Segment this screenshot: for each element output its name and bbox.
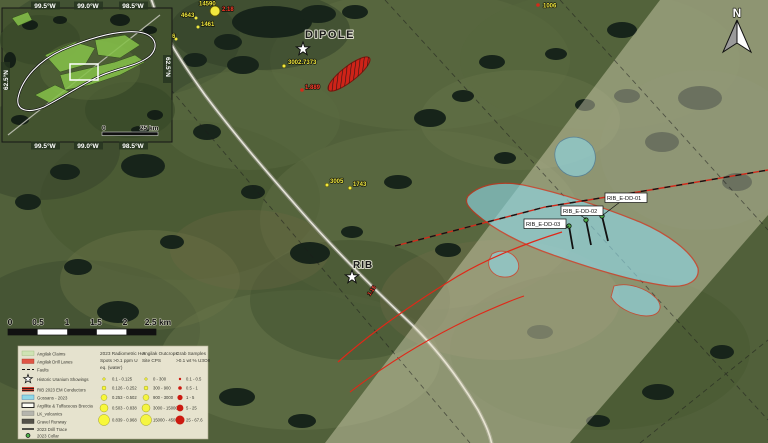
- drill-hole-label: RIB_E-DD-01: [607, 196, 641, 202]
- inset-lon-label: 98.5°W: [122, 2, 144, 10]
- legend-hotspots-row: 0.1 - 0.125: [112, 377, 133, 382]
- legend-grab-row: 0.1 - 0.5: [186, 377, 202, 382]
- legend-item-label: Gossans - 2023: [37, 395, 68, 400]
- legend-item-label: 2023 Drill Trace: [37, 427, 68, 432]
- legend-hotspots-title: 2023 Radiometric Hot: [100, 351, 146, 356]
- inset-scale-zero: 0: [102, 125, 106, 132]
- sample-value: 1743: [353, 182, 367, 188]
- inset-scale-max: 25 km: [140, 125, 159, 132]
- legend-hotspots-row: 0.253 - 0.502: [112, 395, 137, 400]
- legend: Angilak Claims Angilak Drill Lanes Fault…: [18, 346, 211, 439]
- scale-tick: 1.5: [90, 317, 102, 327]
- inset-lon-label: 98.5°W: [122, 142, 144, 150]
- inset-lon-label: 99.0°W: [77, 2, 99, 10]
- scale-bar: 0 0.5 1 1.5 2 2.5 km: [8, 317, 172, 335]
- scale-tick: 0: [8, 317, 13, 327]
- legend-item-label: Angilak Claims: [37, 351, 65, 356]
- legend-item-label: Argillite & Tuffaceous Breccia: [37, 403, 93, 408]
- scale-tick: 1: [65, 317, 70, 327]
- drill-hole-label: RIB_E-DD-02: [563, 209, 597, 215]
- rib-label: RIB: [353, 260, 373, 271]
- sample-value: 14590: [199, 2, 216, 8]
- legend-grab-row: 25 - 67.6: [186, 418, 203, 423]
- scale-tick: 2.5 km: [145, 317, 172, 327]
- inset-lon-label: 99.5°W: [34, 142, 56, 150]
- legend-item-label: Angilak Drill Lanes: [37, 359, 73, 364]
- sample-value: 1006: [543, 4, 557, 10]
- legend-hotspots-title: eq. (water): [100, 365, 123, 370]
- drill-hole-label: RIB_E-DD-03: [526, 222, 560, 228]
- legend-cps-title: Angilak Outcrops: [142, 351, 178, 356]
- north-label: N: [733, 6, 742, 20]
- legend-grab-row: 1 - 5: [186, 395, 195, 400]
- legend-item-label: LK_volcanics: [37, 411, 62, 416]
- sample-value: 1.889: [305, 85, 321, 91]
- sample-value: 3002.7373: [288, 60, 317, 66]
- legend-hotspots-row: 0.503 - 0.838: [112, 406, 137, 411]
- legend-grab-row: 0.5 - 1: [186, 386, 199, 391]
- inset-lon-label: 99.0°W: [77, 142, 99, 150]
- inset-lat-label: 62.5°N: [2, 70, 10, 90]
- legend-cps-title: Site CPS: [142, 358, 161, 363]
- legend-item-label: RIB 2023 EM Conductors: [37, 387, 86, 392]
- exploration-map-figure: RIB_E-DD-01 RIB_E-DD-02 RIB_E-DD-03 DIPO…: [0, 0, 768, 443]
- legend-grab-title: Grab Samples: [176, 351, 207, 356]
- legend-grab-row: 5 - 25: [186, 406, 197, 411]
- scale-tick: 0.5: [32, 317, 44, 327]
- sample-value: 4643: [181, 13, 195, 19]
- scale-tick: 2: [123, 317, 128, 327]
- legend-item-label: Faults: [37, 367, 49, 372]
- dipole-label: DIPOLE: [305, 29, 355, 41]
- legend-grab-title: >0.1 wt % U3O8: [176, 358, 211, 363]
- legend-item-label: Gravel Runway: [37, 419, 67, 424]
- legend-hotspots-row: 0.839 - 0.968: [112, 418, 137, 423]
- legend-hotspots-title: Spots >0.1 ppm U: [100, 358, 138, 363]
- sample-value: 2.18: [222, 7, 234, 13]
- legend-cps-row: 900 - 3000: [153, 395, 174, 400]
- inset-map: 99.5°W 99.0°W 98.5°W 99.5°W 99.0°W 98.5°…: [0, 2, 175, 151]
- sample-value: 3005: [330, 179, 344, 185]
- legend-cps-row: 3000 - 15000: [153, 406, 178, 411]
- legend-item-label: Historic Uranium Showings: [37, 377, 89, 382]
- legend-cps-row: 0 - 300: [153, 377, 167, 382]
- legend-item-label: 2023 Collar: [37, 433, 60, 438]
- inset-lat-label: 62.5°N: [164, 57, 172, 77]
- legend-hotspots-row: 0.126 - 0.252: [112, 386, 137, 391]
- sample-value: 1461: [201, 22, 215, 28]
- map-canvas: RIB_E-DD-01 RIB_E-DD-02 RIB_E-DD-03 DIPO…: [0, 0, 768, 443]
- legend-cps-row: 300 - 900: [153, 386, 171, 391]
- inset-lon-label: 99.5°W: [34, 2, 56, 10]
